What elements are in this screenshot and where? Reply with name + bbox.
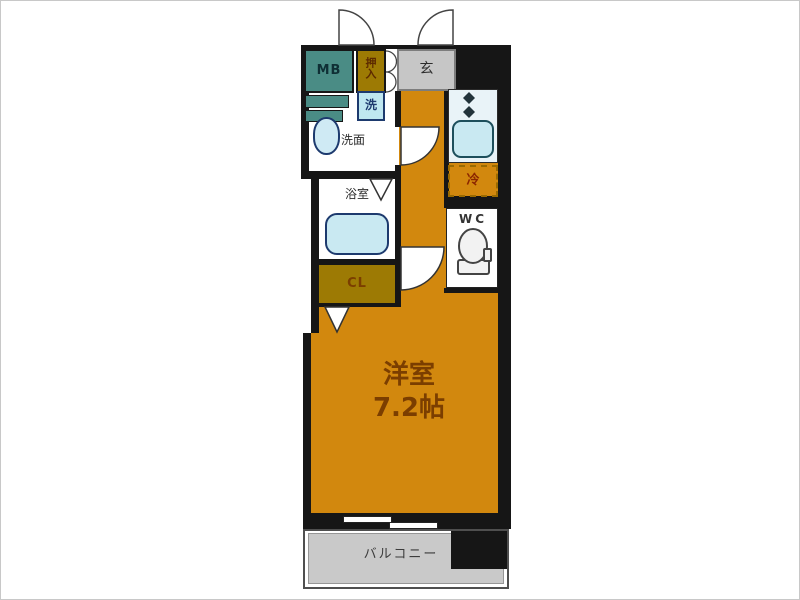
fridge-label: 冷: [448, 173, 498, 189]
entrance-door-swing-icon: [418, 10, 453, 45]
closet-label: CL: [317, 276, 397, 292]
washbasin-sink: [313, 117, 340, 155]
main-room-label: 洋室 7.2帖: [349, 359, 469, 424]
storage-label: 押入: [365, 57, 376, 79]
wall-washroom-east-upper: [395, 89, 401, 127]
balcony-window-right: [389, 522, 438, 529]
bathroom-label: 浴室: [327, 187, 387, 201]
wall-left-middle: [311, 179, 319, 333]
wall-washroom-bathroom: [309, 171, 399, 179]
floor-plan: MB 押入 玄 洗 洗面 浴室 CL 冷 WC 洋室 7.2帖 バルコニー: [0, 0, 800, 600]
wc-label: WC: [448, 212, 498, 226]
meter-box-label: MB: [304, 63, 354, 79]
kitchen-counter: [448, 89, 498, 163]
wall-wc-bottom: [444, 288, 498, 293]
washing-machine-label: 洗: [357, 98, 385, 112]
pipe-space-upper: [305, 95, 349, 108]
wall-fridge-wc: [446, 196, 498, 208]
entrance-label: 玄: [397, 61, 456, 78]
wall-right: [498, 45, 511, 519]
balcony-window-left: [343, 516, 392, 523]
bathtub: [325, 213, 389, 255]
storage-door-gap: [386, 49, 397, 91]
wall-left-lower: [303, 333, 311, 519]
main-room-size: 7.2帖: [349, 392, 469, 425]
washroom-label: 洗面: [341, 133, 391, 147]
entry-door-mb-swing-icon: [339, 10, 374, 45]
main-room-name: 洋室: [349, 359, 469, 392]
balcony-label: バルコニー: [341, 547, 461, 563]
